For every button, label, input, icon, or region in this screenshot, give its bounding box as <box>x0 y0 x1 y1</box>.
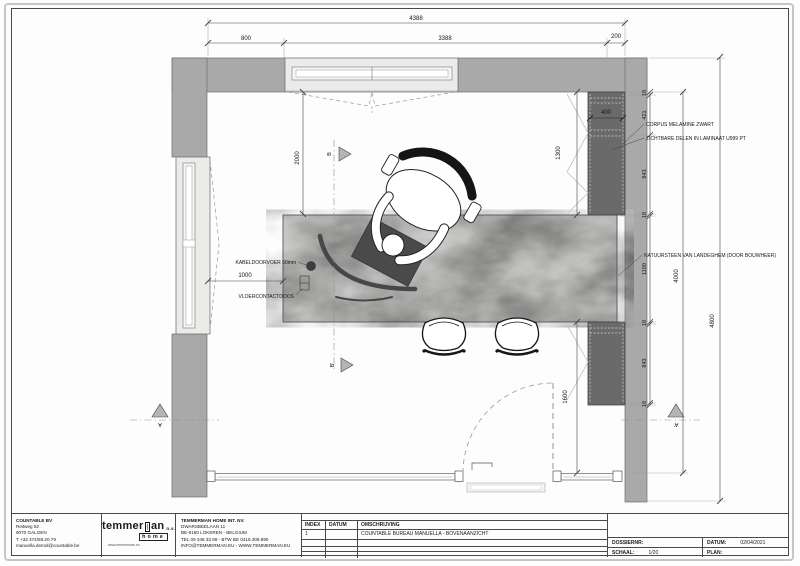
label-corpus: CORPUS MELAMINE ZWART <box>646 122 714 128</box>
dim-chain-18b: 18 <box>642 212 648 218</box>
logo-nv: n.v. <box>166 527 175 533</box>
cabinet-door-swing <box>567 94 588 172</box>
section-label-a2: A' <box>674 421 679 427</box>
cable-grommet <box>307 262 316 271</box>
table-row <box>302 552 607 558</box>
logo-text-1: temmer <box>102 521 144 532</box>
logo-block: temmer an n.v. home www.temmerman.eu <box>102 514 176 557</box>
label-vloercontactdoos: VLOERCONTACTDOOS <box>239 294 295 300</box>
section-arrow-a <box>152 404 168 417</box>
window-swing-right <box>372 92 455 106</box>
dim-4000: 4000 <box>674 269 680 283</box>
desk <box>283 215 617 322</box>
datum-label: DATUM: <box>707 540 726 546</box>
window-swing <box>210 160 219 330</box>
table-row <box>302 540 607 547</box>
guest-chair-1 <box>422 318 465 355</box>
temmerman-logo: temmer an n.v. home www.temmerman.eu <box>102 514 175 547</box>
logo-bars-icon <box>145 522 150 532</box>
section-label-a: A <box>158 421 162 427</box>
row-datum <box>326 530 358 539</box>
logo-home: home <box>139 533 168 541</box>
dim-chain-18c: 18 <box>642 320 648 326</box>
section-label-b2: B' <box>330 363 336 368</box>
dim-1300: 1300 <box>556 146 562 160</box>
guest-chair-2 <box>495 318 538 355</box>
dim-3388: 3388 <box>438 36 452 42</box>
window-swing-left <box>288 92 372 106</box>
col-header-index: INDEX <box>302 521 326 529</box>
table-row: 1 COUNTABLE BUREAU MANUELLA - BOVENAANZI… <box>302 530 607 540</box>
plan-label: PLAN: <box>707 550 722 556</box>
section-arrow-a2 <box>668 404 684 417</box>
floor-plan-drawing: B B' A A' <box>0 0 800 566</box>
firm-info-block: TEMMERMAN HOME INT. NV. DWARSBEELAAN 11 … <box>176 514 302 557</box>
dim-chain-843a: 843 <box>642 169 648 178</box>
label-zichtbare: ZICHTBARE DELEN IN LAMINAAT U999 PT <box>646 136 746 142</box>
dim-chain-18d: 18 <box>642 401 648 407</box>
top-wall-right <box>458 58 647 92</box>
dim-800: 800 <box>241 36 252 42</box>
col-header-datum: DATUM <box>326 521 358 529</box>
dim-chain-421: 421 <box>642 110 648 119</box>
row-omschrijving: COUNTABLE BUREAU MANUELLA - BOVENAANZICH… <box>358 530 607 539</box>
dim-1000: 1000 <box>238 273 252 279</box>
dim-chain-1100: 1100 <box>642 263 648 275</box>
schaal-label: SCHAAL: <box>612 550 635 556</box>
left-window <box>176 157 219 334</box>
dim-2000: 2000 <box>295 151 301 165</box>
section-arrow-b <box>339 147 351 161</box>
left-wall-upper <box>172 58 207 157</box>
dossier-label: DOSSIERNR: <box>612 540 643 546</box>
row-index: 1 <box>302 530 326 539</box>
drawing-sheet: B B' A A' <box>0 0 800 566</box>
dim-1600: 1600 <box>563 390 569 404</box>
dim-400: 400 <box>601 110 612 116</box>
logo-url: www.temmerman.eu <box>102 543 175 547</box>
logo-text-2: an <box>151 521 164 532</box>
label-kabeldoorvoer: KABELDOORVOER 60mm <box>236 260 296 266</box>
lower-cabinet <box>567 322 625 405</box>
section-arrow-b2 <box>341 358 353 372</box>
cabinet-door-swing <box>567 172 588 214</box>
door-handle <box>472 463 492 470</box>
title-block: COUNTABLE BV Reitweg 52 9070 GALGEN T +3… <box>11 513 789 556</box>
door-swing-arc <box>463 383 553 473</box>
meta-block: DOSSIERNR: DATUM: 02/04/2021 SCHAAL: 1/2… <box>608 514 789 557</box>
door <box>463 383 553 492</box>
left-wall-lower <box>172 334 207 497</box>
dim-total-width: 4388 <box>409 16 423 22</box>
bottom-partition <box>207 471 622 482</box>
revision-table: INDEX DATUM OMSCHRIJVING 1 COUNTABLE BUR… <box>302 514 608 557</box>
datum-value: 02/04/2021 <box>740 540 765 546</box>
dim-chain-843b: 843 <box>642 358 648 367</box>
dim-200: 200 <box>611 34 622 40</box>
schaal-value: 1/20 <box>649 550 659 556</box>
cabinet-door-swing <box>567 325 588 400</box>
dim-chain-18a: 18 <box>642 90 648 96</box>
dim-4800: 4800 <box>710 314 716 328</box>
top-window <box>285 58 458 113</box>
firm-web: INFO@TEMMERMAN.EU - WWW.TEMMERMAN.EU <box>181 543 298 549</box>
label-natuursteen: NATUURSTEEN VAN LANDEGHEM (DOOR BOUWHEER… <box>644 253 776 259</box>
upper-cabinet <box>567 92 625 215</box>
client-info-block: COUNTABLE BV Reitweg 52 9070 GALGEN T +3… <box>11 514 102 557</box>
client-email: manuella.demol@countable.be <box>16 543 98 549</box>
col-header-omschrijving: OMSCHRIJVING <box>358 521 607 529</box>
section-label-b: B <box>327 152 333 156</box>
